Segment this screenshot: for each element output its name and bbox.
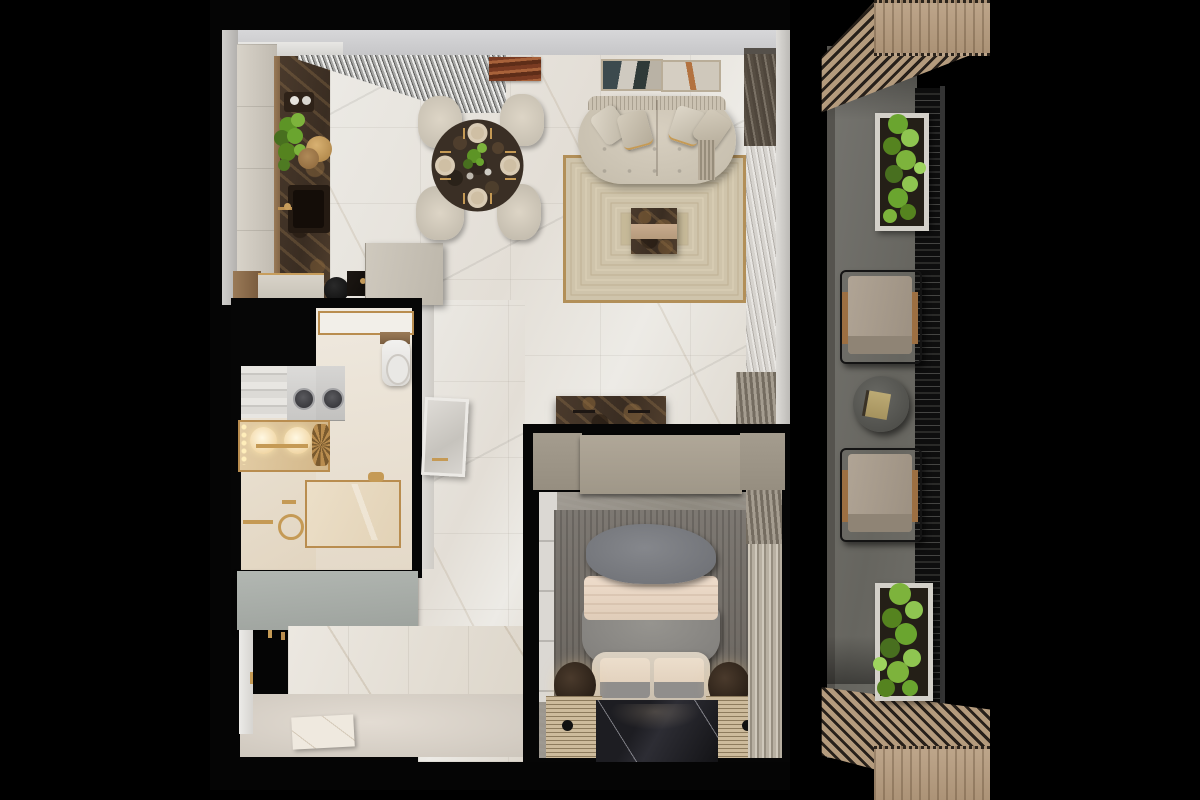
- wall-hook-icon: [281, 632, 285, 640]
- jar-icon: [290, 96, 299, 105]
- lounge-chair-bottom-seatfront: [848, 514, 912, 532]
- bedroom-curtain-bunch: [746, 490, 782, 544]
- wall-art-rust: [489, 57, 541, 81]
- book: [862, 390, 891, 420]
- taupe-wardrobe-center: [580, 435, 742, 494]
- vanity-basin: [250, 427, 277, 454]
- runner-reflection: [610, 704, 700, 730]
- ottoman-leather-band: [631, 224, 677, 239]
- door-handle-icon: [250, 672, 253, 684]
- gold-faucet-knob: [284, 203, 291, 210]
- leaning-mirror: [421, 397, 469, 477]
- sheer-curtains: [746, 146, 780, 376]
- lounge-chair-bottom-arm-left: [842, 470, 848, 522]
- vanity-basin: [284, 427, 311, 454]
- apartment-shell: [210, 0, 790, 790]
- toilet-seat: [386, 354, 410, 385]
- washer-door-icon: [293, 388, 315, 410]
- kitchen-sink-basin: [293, 190, 324, 228]
- lounge-chair-bottom-arm-right: [912, 470, 918, 522]
- kitchen-cabinet-column: [237, 44, 277, 304]
- pergola-deck-top: [874, 0, 990, 56]
- taupe-wardrobe-right: [740, 433, 785, 490]
- wood-round-board: [298, 148, 319, 169]
- entry-floor: [240, 694, 530, 757]
- curtain-bunch-top: [744, 54, 780, 146]
- dryer-door-icon: [322, 388, 344, 410]
- planter-top-plants: [864, 108, 936, 230]
- curtain-bunch-bottom: [736, 372, 780, 432]
- right-wall-sliver: [776, 30, 790, 434]
- wall-art-light: [661, 60, 721, 92]
- shower-handle: [282, 500, 296, 504]
- pergola-deck-bottom: [874, 746, 990, 800]
- round-dining-table: [430, 118, 525, 213]
- shower-glass-sheen: [309, 484, 393, 540]
- vanity-bulbs: [240, 423, 248, 465]
- mirror-gold-detail: [432, 458, 448, 461]
- wall-hook-icon: [268, 630, 272, 638]
- wall-art-dark: [601, 59, 663, 91]
- floor-plan-render: [0, 0, 1200, 800]
- jar-icon: [302, 96, 311, 105]
- balcony: [820, 0, 1000, 800]
- ribbed-bench-left: [546, 696, 602, 758]
- vanity-gold-bar: [256, 444, 308, 448]
- fringed-throw: [698, 140, 715, 180]
- left-wall-sliver: [222, 30, 238, 305]
- lounge-chair-top-arm-left: [842, 292, 848, 344]
- console-handle: [573, 410, 595, 413]
- gold-ornament: [312, 424, 330, 466]
- entry-marble-wainscot: [288, 626, 530, 696]
- linen-shelf: [241, 366, 287, 418]
- planter-bottom-plants: [856, 576, 942, 706]
- taupe-wardrobe-left: [533, 433, 582, 490]
- bench-dot-left: [562, 720, 573, 731]
- console-handle: [628, 410, 650, 413]
- doormat: [291, 714, 355, 749]
- lounge-chair-top-arm-right: [912, 292, 918, 344]
- bench-cushion-front: [654, 682, 704, 698]
- lounge-chair-top-seatfront: [848, 336, 912, 354]
- bedroom-curtains: [748, 544, 782, 758]
- bench-cushion-front: [600, 682, 650, 698]
- shower-head-icon: [368, 472, 384, 482]
- gold-drain-ring: [278, 514, 304, 540]
- sage-wardrobe: [237, 571, 418, 630]
- tall-cabinet: [365, 243, 443, 305]
- towel-bar: [243, 520, 273, 524]
